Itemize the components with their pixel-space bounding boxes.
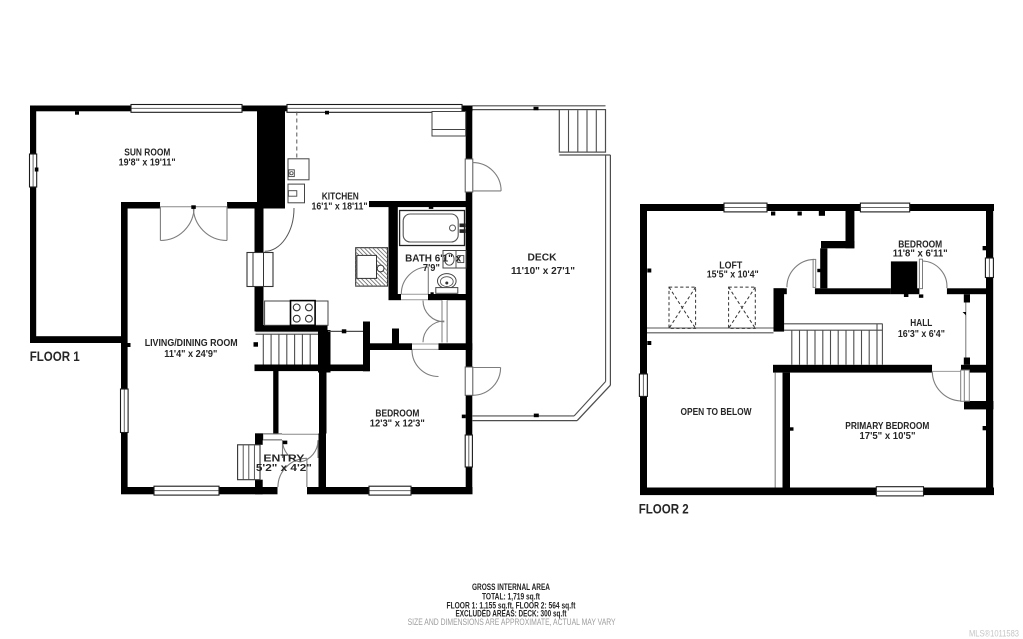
- svg-text:OPEN TO BELOW: OPEN TO BELOW: [681, 407, 752, 418]
- svg-text:16'3" x 6'4": 16'3" x 6'4": [898, 329, 945, 340]
- svg-text:SIZE AND DIMENSIONS ARE APPROX: SIZE AND DIMENSIONS ARE APPROXIMATE, ACT…: [408, 617, 616, 627]
- svg-text:LIVING/DINING ROOM: LIVING/DINING ROOM: [145, 338, 238, 349]
- svg-text:MLS®1011583: MLS®1011583: [969, 629, 1019, 639]
- svg-text:FLOOR 2: FLOOR 2: [639, 501, 689, 517]
- svg-text:11'4" x 24'9": 11'4" x 24'9": [164, 349, 217, 360]
- svg-text:11'8" x 6'11": 11'8" x 6'11": [893, 249, 948, 260]
- svg-text:7'9": 7'9": [423, 263, 440, 274]
- svg-text:5'2" x 4'2": 5'2" x 4'2": [256, 463, 312, 474]
- svg-text:HALL: HALL: [910, 318, 932, 329]
- svg-text:GROSS INTERNAL AREA: GROSS INTERNAL AREA: [472, 582, 550, 592]
- svg-text:12'3" x 12'3": 12'3" x 12'3": [370, 418, 425, 429]
- svg-text:15'5" x 10'4": 15'5" x 10'4": [707, 269, 759, 280]
- svg-text:FLOOR 1: FLOOR 1: [30, 348, 80, 364]
- svg-text:17'5" x 10'5": 17'5" x 10'5": [860, 431, 916, 442]
- svg-text:16'1" x 18'11": 16'1" x 18'11": [312, 202, 368, 213]
- svg-text:DECK: DECK: [528, 253, 558, 264]
- svg-text:19'8" x 19'11": 19'8" x 19'11": [119, 157, 176, 168]
- svg-text:11'10" x 27'1": 11'10" x 27'1": [511, 266, 575, 277]
